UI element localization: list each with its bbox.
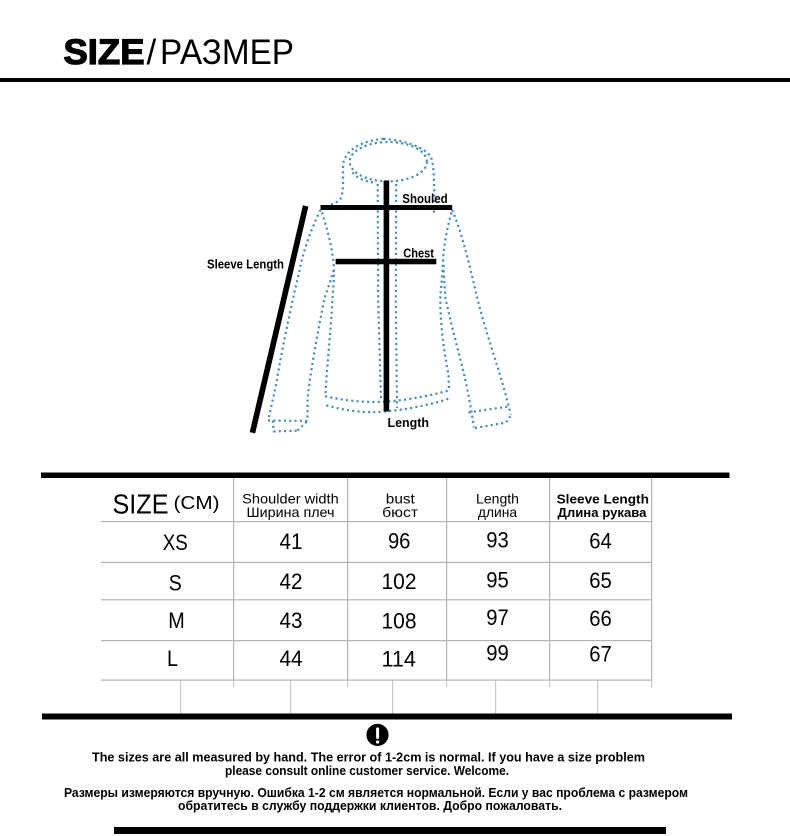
svg-text:Shouled: Shouled [402, 191, 447, 206]
svg-text:обратитесь в службу поддержки: обратитесь в службу поддержки клиентов. … [178, 798, 562, 813]
svg-text:/: / [147, 33, 157, 72]
svg-text:бюст: бюст [382, 504, 419, 520]
svg-text:The sizes are all measured by: The sizes are all measured by hand. The … [92, 749, 645, 764]
svg-text:SIZE: SIZE [113, 489, 169, 520]
svg-text:64: 64 [589, 528, 612, 553]
svg-text:42: 42 [280, 569, 303, 594]
svg-text:XS: XS [163, 530, 188, 555]
svg-text:Chest: Chest [403, 246, 434, 261]
svg-text:114: 114 [381, 647, 416, 672]
svg-text:Sleeve Length: Sleeve Length [557, 492, 649, 506]
svg-text:Длина рукава: Длина рукава [558, 506, 648, 520]
svg-text:97: 97 [486, 605, 509, 630]
svg-text:Sleeve Length: Sleeve Length [207, 257, 284, 272]
svg-text:99: 99 [486, 641, 509, 666]
svg-text:43: 43 [280, 608, 303, 633]
svg-text:108: 108 [382, 609, 417, 634]
svg-text:РАЗМЕР: РАЗМЕР [160, 33, 294, 72]
svg-text:(CM): (CM) [174, 492, 220, 513]
svg-text:M: M [168, 608, 185, 633]
svg-text:SIZE: SIZE [64, 33, 145, 72]
svg-text:S: S [169, 571, 182, 596]
svg-text:длина: длина [478, 504, 517, 520]
svg-text:44: 44 [280, 646, 303, 671]
svg-text:41: 41 [280, 529, 303, 554]
svg-text:67: 67 [589, 642, 612, 667]
svg-text:Length: Length [388, 415, 430, 430]
svg-text:102: 102 [382, 569, 417, 594]
svg-text:93: 93 [486, 528, 509, 553]
svg-text:95: 95 [486, 568, 509, 593]
svg-text:65: 65 [589, 568, 612, 593]
svg-text:L: L [167, 646, 178, 671]
svg-text:66: 66 [589, 606, 612, 631]
svg-text:Ширина плеч: Ширина плеч [247, 504, 335, 520]
svg-text:please consult online customer: please consult online customer service. … [225, 763, 509, 778]
svg-text:96: 96 [388, 528, 411, 553]
